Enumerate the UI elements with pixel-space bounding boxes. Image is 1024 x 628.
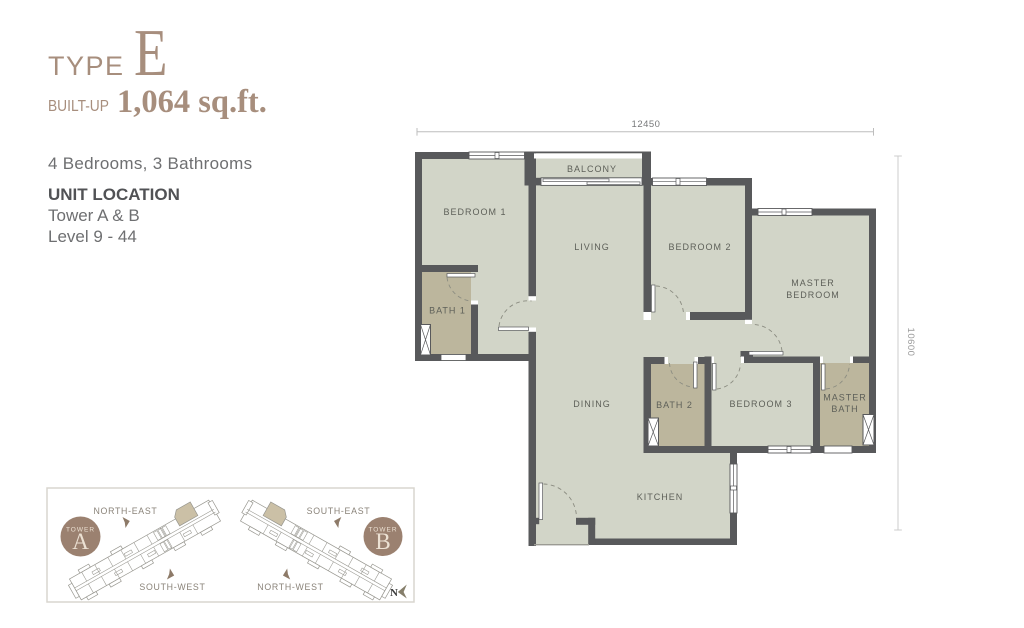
svg-text:SOUTH-EAST: SOUTH-EAST xyxy=(307,506,371,516)
svg-text:B: B xyxy=(375,529,390,554)
svg-text:NORTH-WEST: NORTH-WEST xyxy=(257,582,323,592)
svg-text:N: N xyxy=(390,587,398,599)
svg-text:A: A xyxy=(72,529,89,554)
svg-text:SOUTH-WEST: SOUTH-WEST xyxy=(139,582,205,592)
svg-text:NORTH-EAST: NORTH-EAST xyxy=(93,506,157,516)
